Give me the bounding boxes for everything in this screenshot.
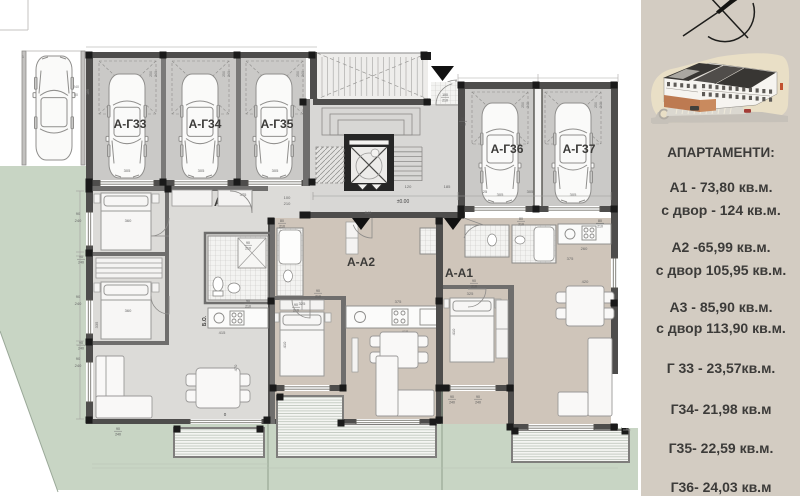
svg-text:90: 90 [246,241,250,245]
svg-text:240: 240 [115,433,121,437]
svg-text:250: 250 [222,71,226,77]
svg-text:240: 240 [75,218,82,223]
svg-text:с двор 105,95 кв.м.: с двор 105,95 кв.м. [656,262,786,278]
svg-text:с двор - 124 кв.м.: с двор - 124 кв.м. [661,202,781,218]
svg-text:100: 100 [284,195,291,200]
svg-text:Г 33 - 23,57кв.м.: Г 33 - 23,57кв.м. [667,360,776,376]
svg-text:415: 415 [219,330,226,335]
svg-text:250: 250 [149,71,153,77]
svg-text:80: 80 [519,217,523,221]
svg-text:325: 325 [467,291,474,296]
svg-text:240: 240 [599,102,603,108]
svg-text:90: 90 [246,299,250,303]
svg-text:120: 120 [405,184,412,189]
svg-text:260: 260 [581,246,588,251]
svg-text:90: 90 [79,255,83,259]
svg-text:210: 210 [460,123,466,127]
svg-text:210: 210 [245,305,251,309]
svg-text:185: 185 [444,184,451,189]
svg-text:240: 240 [475,401,481,405]
svg-text:Г36- 24,03 кв.м: Г36- 24,03 кв.м [671,479,772,495]
svg-text:А-Г36: А-Г36 [491,142,524,156]
svg-text:240: 240 [154,71,158,77]
svg-text:410: 410 [282,341,287,348]
svg-text:Б.О.: Б.О. [202,315,208,326]
svg-text:240: 240 [78,261,84,265]
svg-text:410: 410 [451,328,456,335]
svg-text:±0.00: ±0.00 [397,199,410,205]
svg-text:А1 - 73,80 кв.м.: А1 - 73,80 кв.м. [669,179,772,195]
svg-text:240: 240 [227,71,231,77]
svg-text:90: 90 [79,341,83,345]
svg-text:240: 240 [75,363,82,368]
svg-text:АПАРТАМЕНТИ:: АПАРТАМЕНТИ: [667,145,774,160]
svg-text:240: 240 [301,71,305,77]
svg-text:50: 50 [74,93,78,97]
svg-text:250: 250 [296,71,300,77]
svg-text:25: 25 [483,189,488,194]
svg-text:360: 360 [125,218,132,223]
svg-text:375: 375 [395,299,402,304]
svg-text:210: 210 [597,225,603,229]
svg-text:с двор 113,90 кв.м.: с двор 113,90 кв.м. [656,320,786,336]
svg-text:90: 90 [450,395,454,399]
svg-text:325: 325 [299,301,306,306]
svg-text:305: 305 [527,189,534,194]
svg-text:375: 375 [567,256,574,261]
svg-text:90: 90 [76,356,81,361]
svg-text:90: 90 [316,289,320,293]
svg-text:90: 90 [476,395,480,399]
svg-text:А-Г37: А-Г37 [563,142,596,156]
svg-text:100: 100 [442,93,448,97]
svg-text:А-А1: А-А1 [445,266,473,280]
svg-text:90: 90 [76,211,81,216]
svg-text:240: 240 [73,85,79,89]
svg-text:210: 210 [518,223,524,227]
svg-text:210: 210 [279,225,285,229]
svg-text:305: 305 [198,168,205,173]
svg-text:80: 80 [280,219,284,223]
svg-text:90: 90 [116,427,120,431]
svg-text:240: 240 [75,301,82,306]
svg-text:240: 240 [78,347,84,351]
svg-text:90: 90 [76,294,81,299]
svg-text:210: 210 [315,295,321,299]
svg-text:90: 90 [461,117,465,121]
svg-text:90: 90 [294,303,298,307]
svg-text:А2 -65,99 кв.м.: А2 -65,99 кв.м. [671,239,770,255]
svg-text:375: 375 [240,192,247,197]
svg-text:А-А2: А-А2 [347,255,375,269]
svg-text:Г34- 21,98 кв.м: Г34- 21,98 кв.м [671,401,772,417]
svg-text:240: 240 [449,401,455,405]
svg-text:335: 335 [94,321,99,328]
svg-text:210: 210 [471,285,477,289]
svg-text:840: 840 [365,210,372,215]
svg-text:470: 470 [233,364,238,371]
svg-text:210: 210 [442,99,448,103]
svg-text:360: 360 [125,308,132,313]
svg-text:210: 210 [284,201,291,206]
svg-text:80: 80 [598,219,602,223]
svg-text:210: 210 [245,247,251,251]
svg-text:А-Г35: А-Г35 [261,117,294,131]
svg-text:Г35- 22,59 кв.м.: Г35- 22,59 кв.м. [669,440,774,456]
svg-text:420: 420 [582,279,589,284]
svg-text:90: 90 [472,279,476,283]
svg-text:250: 250 [594,102,598,108]
svg-text:305: 305 [272,168,279,173]
svg-text:А3 - 85,90 кв.м.: А3 - 85,90 кв.м. [669,299,772,315]
svg-text:185: 185 [86,89,90,95]
svg-text:305: 305 [124,168,131,173]
svg-text:250: 250 [521,102,525,108]
svg-text:А-Г33: А-Г33 [114,117,147,131]
svg-text:А-Г34: А-Г34 [189,117,222,131]
svg-text:240: 240 [526,102,530,108]
